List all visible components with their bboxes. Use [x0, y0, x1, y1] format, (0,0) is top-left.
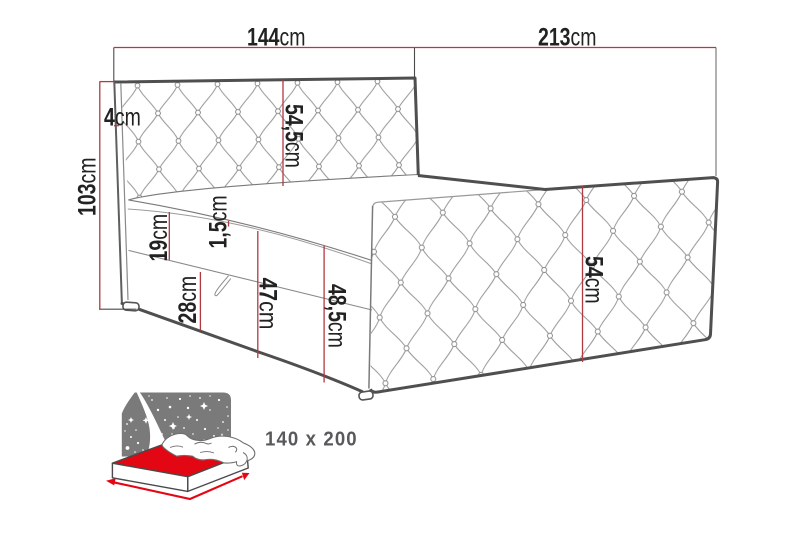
svg-text:1,5cm: 1,5cm [204, 195, 232, 248]
svg-text:47cm: 47cm [254, 278, 282, 330]
svg-text:213cm: 213cm [538, 23, 597, 51]
svg-text:103cm: 103cm [73, 157, 101, 216]
svg-text:48,5cm: 48,5cm [323, 284, 351, 348]
svg-text:140 x 200: 140 x 200 [265, 429, 358, 451]
svg-text:28cm: 28cm [174, 276, 202, 324]
svg-text:144cm: 144cm [247, 23, 306, 51]
svg-text:54,5cm: 54,5cm [280, 104, 308, 168]
svg-text:19cm: 19cm [144, 214, 172, 262]
svg-text:4cm: 4cm [104, 103, 141, 131]
svg-text:54cm: 54cm [580, 256, 608, 304]
